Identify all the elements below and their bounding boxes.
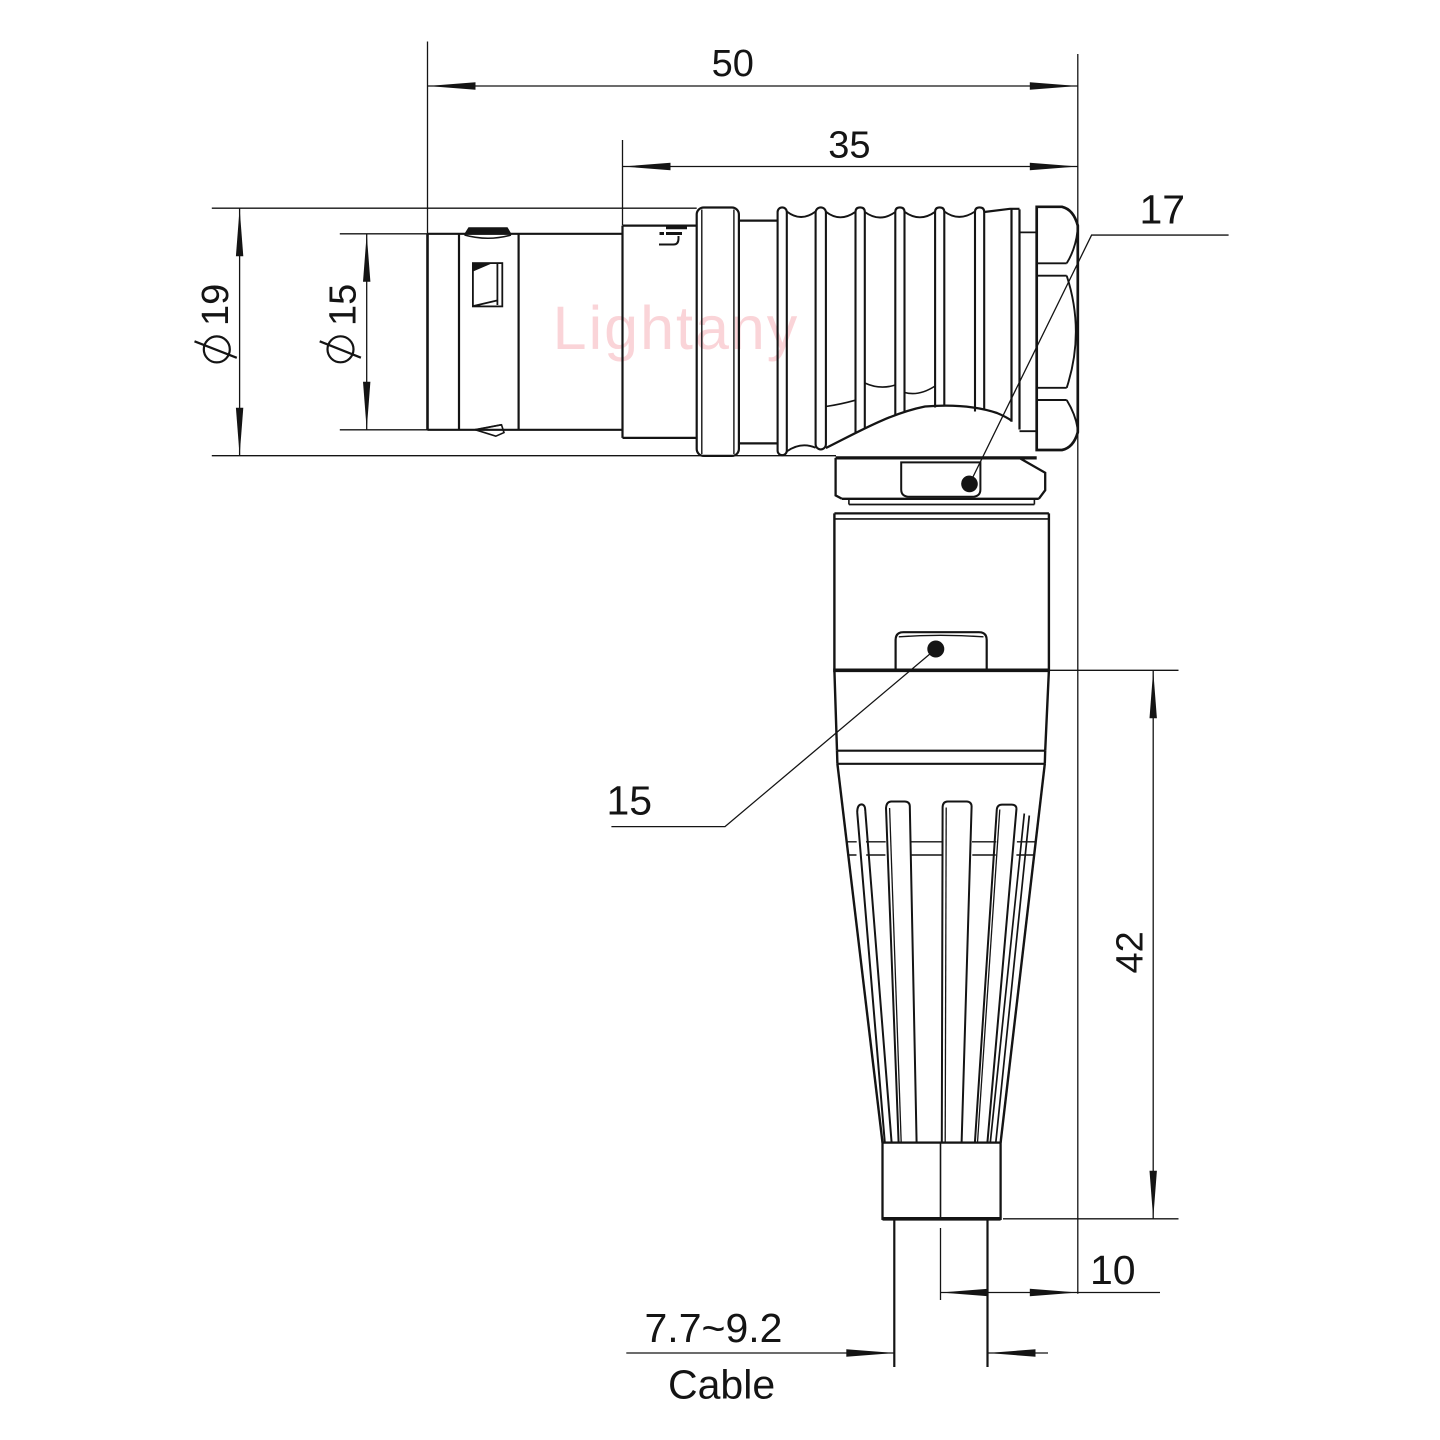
svg-text:10: 10: [1090, 1247, 1136, 1293]
svg-text:19: 19: [195, 284, 237, 326]
svg-text:15: 15: [322, 284, 364, 326]
svg-text:50: 50: [712, 43, 754, 85]
svg-text:35: 35: [828, 125, 870, 167]
svg-text:7.7~9.2: 7.7~9.2: [645, 1305, 783, 1351]
svg-text:42: 42: [1110, 931, 1152, 973]
svg-text:15: 15: [607, 777, 653, 823]
svg-text:Cable: Cable: [668, 1361, 775, 1407]
svg-text:17: 17: [1140, 186, 1186, 232]
svg-text:Lightany: Lightany: [553, 294, 800, 362]
